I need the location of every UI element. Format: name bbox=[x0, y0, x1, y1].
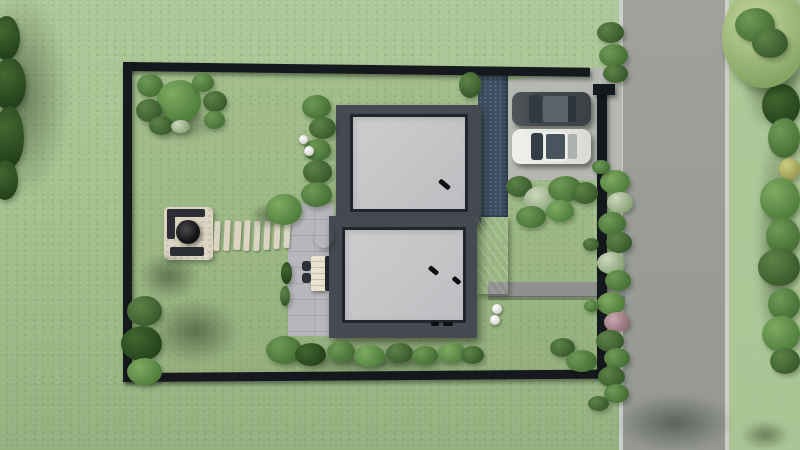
bush bbox=[588, 396, 609, 411]
bush bbox=[171, 120, 190, 133]
bush bbox=[354, 345, 385, 367]
sphere-lamp bbox=[492, 304, 502, 314]
bush bbox=[309, 117, 336, 139]
bush bbox=[127, 358, 162, 385]
bush bbox=[301, 182, 332, 207]
bush bbox=[597, 22, 624, 43]
patio-chair bbox=[302, 273, 311, 283]
bush bbox=[592, 160, 610, 174]
bush bbox=[584, 300, 599, 312]
bush bbox=[779, 158, 800, 180]
sphere-lamp bbox=[490, 315, 500, 325]
patio-table bbox=[311, 256, 326, 291]
car-rear-glass bbox=[568, 134, 577, 159]
car-rear-glass bbox=[568, 96, 576, 122]
bush bbox=[607, 192, 633, 213]
bush bbox=[461, 346, 484, 364]
bush bbox=[603, 64, 628, 83]
sphere-lamp bbox=[304, 146, 314, 156]
car-windshield bbox=[531, 133, 543, 160]
side-walkway-dark bbox=[478, 68, 508, 217]
bush bbox=[546, 200, 574, 222]
bush bbox=[302, 95, 331, 119]
car-roof bbox=[543, 96, 569, 122]
bush bbox=[295, 343, 326, 366]
bush bbox=[606, 232, 632, 253]
cast-shadow bbox=[150, 298, 240, 364]
dark-gray-car bbox=[512, 92, 591, 126]
bush bbox=[204, 111, 225, 129]
bush bbox=[566, 350, 597, 372]
bush bbox=[762, 316, 800, 352]
bush bbox=[303, 160, 332, 184]
bush bbox=[149, 116, 173, 135]
bush bbox=[583, 238, 599, 251]
white-car bbox=[512, 129, 591, 164]
bush bbox=[266, 194, 302, 225]
bush bbox=[760, 178, 800, 220]
bush bbox=[768, 118, 800, 158]
bush bbox=[121, 326, 162, 361]
bush bbox=[770, 348, 800, 374]
parapet-fixture bbox=[443, 322, 453, 326]
street-road bbox=[621, 0, 728, 450]
cast-shadow bbox=[138, 252, 200, 300]
bush bbox=[281, 262, 292, 284]
bush bbox=[600, 170, 630, 194]
firepit-bench bbox=[167, 213, 175, 239]
bush bbox=[604, 312, 630, 332]
bush bbox=[280, 286, 290, 306]
car-windshield bbox=[529, 95, 542, 123]
bush bbox=[412, 346, 438, 365]
cast-shadow bbox=[614, 394, 736, 450]
bush bbox=[459, 72, 481, 98]
bush bbox=[752, 28, 788, 58]
bush bbox=[605, 270, 631, 291]
cast-shadow bbox=[740, 420, 790, 450]
bush bbox=[516, 206, 546, 228]
bush bbox=[604, 348, 630, 368]
glass-canopy bbox=[477, 217, 508, 294]
bush bbox=[313, 221, 334, 248]
fence-gate-post bbox=[593, 84, 615, 95]
aerial-site-render bbox=[0, 0, 800, 450]
bush bbox=[127, 296, 162, 326]
bush bbox=[203, 91, 227, 112]
bush bbox=[758, 248, 800, 286]
upper-building-roof bbox=[350, 114, 468, 212]
bush bbox=[572, 182, 598, 204]
bush bbox=[386, 343, 413, 363]
parapet-fixture bbox=[431, 322, 439, 326]
sphere-lamp bbox=[299, 135, 308, 144]
patio-chair bbox=[302, 261, 311, 271]
bush bbox=[327, 341, 355, 362]
car-roof bbox=[544, 132, 567, 161]
bush bbox=[192, 73, 214, 92]
lower-building-roof bbox=[342, 227, 466, 323]
fire-pit-bowl bbox=[176, 220, 200, 244]
